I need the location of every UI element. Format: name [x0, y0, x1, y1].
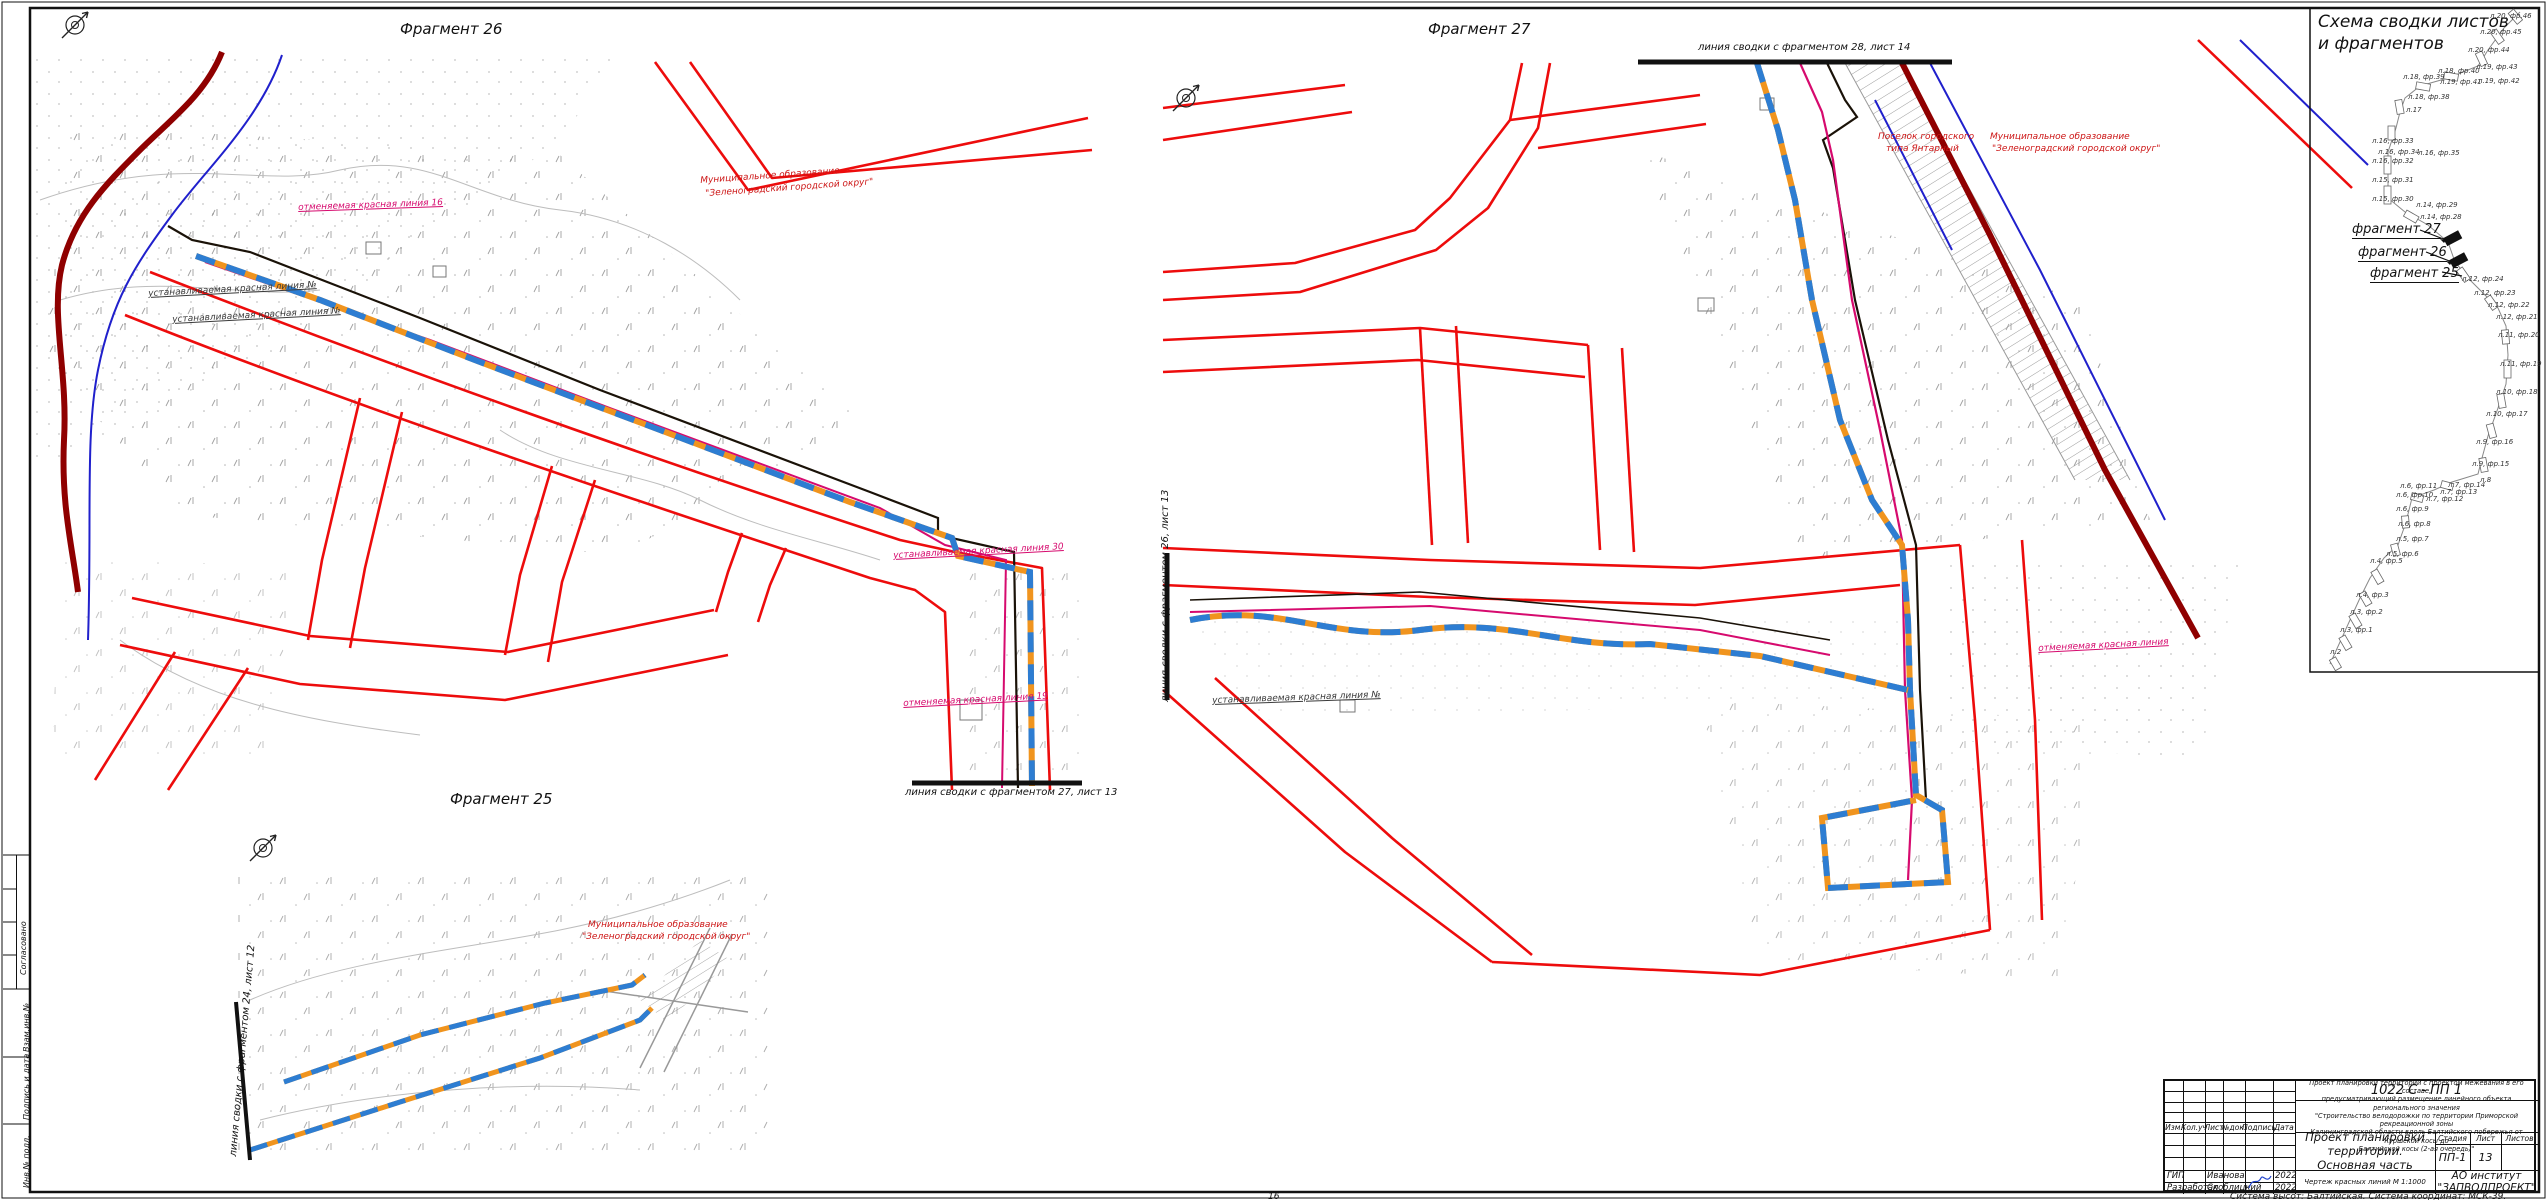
key-panel-item: л.6, фр.8: [2398, 520, 2431, 528]
role-2-name: Скоблицкий: [2205, 1182, 2245, 1194]
key-panel-fragment-callout: фрагмент 27: [2352, 222, 2441, 239]
key-panel-item: л.3, фр.1: [2340, 626, 2373, 634]
key-panel-item: л.16, фр.35: [2418, 149, 2460, 157]
key-panel-item: л.19, фр.43: [2476, 63, 2518, 71]
map-label: линия сводки с фрагментом 26, лист 13: [1160, 490, 1171, 702]
key-panel-item: л.10, фр.17: [2486, 410, 2528, 418]
key-panel-item: л.12, фр.22: [2488, 301, 2530, 309]
key-panel-item: л.16, фр.33: [2372, 137, 2414, 145]
map-label: линия сводки с фрагментом 27, лист 13: [905, 787, 1117, 798]
drawing-sheet: Фрагмент 26 Фрагмент 27 Фрагмент 25 Схем…: [0, 0, 2547, 1200]
project-title: Проект планировки территории. Основная ч…: [2295, 1132, 2435, 1170]
key-panel-item: л.9, фр.15: [2472, 460, 2509, 468]
fragment-27-map: [1163, 40, 2368, 980]
project-description-line: предусматривающий размещение линейного о…: [2295, 1095, 2538, 1111]
map-label: Поселок городского: [1878, 132, 1974, 142]
key-panel-fragment-callout: фрагмент 26: [2358, 245, 2447, 262]
sheet-chain-line: [2330, 12, 2520, 664]
map-label: "Зеленоградский городской округ": [1992, 144, 2160, 154]
key-panel-item: л.3, фр.2: [2350, 608, 2383, 616]
stage-label: Стадия: [2435, 1132, 2470, 1144]
key-panel-item: л.17: [2406, 106, 2422, 114]
key-panel-item: л.14, фр.29: [2416, 201, 2458, 209]
key-panel-item: л.19, фр.42: [2478, 77, 2520, 85]
key-panel-item: л.20, фр.45: [2480, 28, 2522, 36]
key-panel-item: л.4, фр.3: [2356, 591, 2389, 599]
sheet-value: 13: [2470, 1144, 2501, 1170]
signature-mark: [2245, 1170, 2273, 1194]
key-panel-item: л.2: [2330, 648, 2341, 656]
project-description: Проект планировки территории с проектом …: [2295, 1100, 2538, 1132]
rev-col-koluch: Кол.уч: [2183, 1122, 2205, 1133]
key-panel-item: л.10, фр.18: [2496, 388, 2538, 396]
key-panel-item: л.18, фр.39: [2403, 73, 2445, 81]
key-panel-item: л.7, фр.12: [2426, 495, 2463, 503]
fragment-25-title: Фрагмент 25: [450, 790, 552, 808]
key-panel-item: л.11, фр.19: [2500, 360, 2542, 368]
rev-col-data: Дата: [2273, 1122, 2295, 1133]
role-2-date: 2022: [2273, 1182, 2295, 1194]
frame-label-agreed: Согласовано: [19, 921, 28, 975]
key-panel-item: л.9, фр.16: [2476, 438, 2513, 446]
project-description-line: "Строительство велодорожки по территории…: [2295, 1112, 2538, 1128]
key-panel-title-2: и фрагментов: [2318, 34, 2444, 54]
key-panel-item: л.6, фр.11: [2400, 482, 2437, 490]
key-panel-item: л.20, фр.44: [2468, 46, 2510, 54]
organization: АО институт "ЗАПВОДПРОЕКТ": [2435, 1170, 2538, 1194]
stage-value: ПП-1: [2435, 1144, 2470, 1170]
sheets-total-value: [2501, 1144, 2538, 1170]
map-linework: [0, 0, 2547, 1200]
key-panel-item: л.12, фр.24: [2462, 275, 2504, 283]
key-panel-item: л.4, фр.5: [2370, 557, 2403, 565]
role-1-title: ГИП: [2165, 1170, 2205, 1182]
rev-col-podpis: Подпись: [2245, 1122, 2273, 1133]
map-label: линия сводки с фрагментом 28, лист 14: [1698, 42, 1910, 53]
key-panel-item: л.11, фр.20: [2498, 331, 2540, 339]
role-2-title: Разработал: [2165, 1182, 2205, 1194]
key-panel-fragment-callout: фрагмент 25: [2370, 266, 2459, 283]
sheet-chain-rects: [2329, 9, 2522, 671]
title-block: Изм. Кол.уч Лист №док. Подпись Дата ГИП …: [2163, 1079, 2536, 1192]
key-panel-item: л.16, фр.34: [2378, 148, 2420, 156]
fragment-26-title: Фрагмент 26: [400, 20, 502, 38]
key-panel-item: л.15, фр.30: [2372, 195, 2414, 203]
frame-label-vzam: Взам.инв.№: [22, 1003, 31, 1052]
fragment-27-title: Фрагмент 27: [1428, 20, 1530, 38]
fragment-26-map: [35, 12, 1092, 790]
fragment-25-map: [236, 835, 768, 1160]
project-description-line: Проект планировки территории с проектом …: [2295, 1079, 2538, 1095]
frame-label-inv: Инв.№ подл.: [22, 1135, 31, 1188]
key-panel-item: л.16, фр.32: [2372, 157, 2414, 165]
page-number: 16: [1268, 1192, 1279, 1200]
key-panel-item: л.6, фр.9: [2396, 505, 2429, 513]
sheets-label: Листов: [2501, 1132, 2538, 1144]
key-panel-item: л.12, фр.21: [2496, 313, 2538, 321]
map-label: "Зеленоградский городской округ": [582, 932, 750, 942]
key-panel-item: л.20, фр.46: [2490, 12, 2532, 20]
sheet-label: Лист: [2470, 1132, 2501, 1144]
key-panel-item: л.15, фр.31: [2372, 176, 2414, 184]
role-1-date: 2022: [2273, 1170, 2295, 1182]
key-panel-item: л.18, фр.38: [2408, 93, 2450, 101]
map-label: типа Янтарный: [1886, 144, 1959, 154]
drawing-name: Чертеж красных линий М 1:1000: [2295, 1170, 2435, 1194]
key-panel-item: л.5, фр.7: [2396, 535, 2429, 543]
key-panel-item: л.14, фр.28: [2420, 213, 2462, 221]
frame-label-podp: Подпись и дата: [22, 1054, 31, 1120]
rev-col-list: Лист: [2205, 1122, 2223, 1133]
map-label: Муниципальное образование: [1990, 132, 2130, 142]
key-panel-item: л.19, фр.41: [2440, 78, 2482, 86]
key-panel-box: [2310, 8, 2539, 672]
role-1-name: Иванова: [2205, 1170, 2245, 1182]
map-label: Муниципальное образование: [588, 920, 728, 930]
key-panel-item: л.12, фр.23: [2474, 289, 2516, 297]
